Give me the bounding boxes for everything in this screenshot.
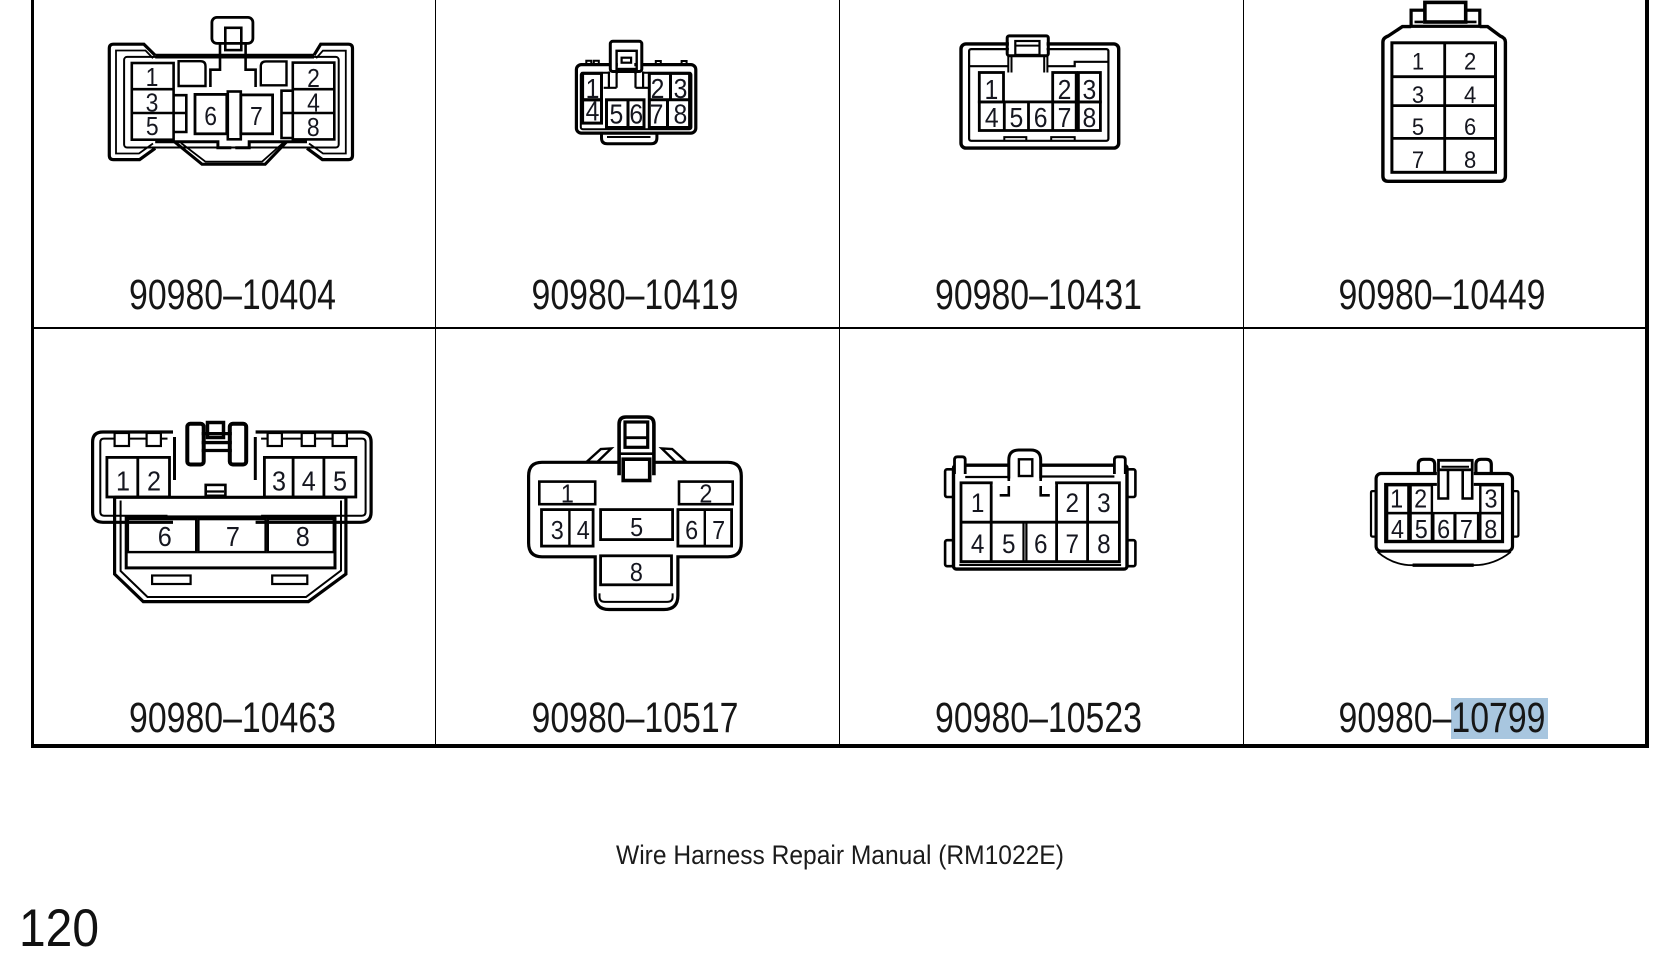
svg-text:7: 7: [250, 103, 263, 131]
svg-text:6: 6: [158, 521, 172, 553]
svg-text:4: 4: [985, 102, 999, 134]
svg-text:8: 8: [630, 559, 643, 587]
svg-text:3: 3: [551, 517, 564, 545]
svg-text:1: 1: [561, 481, 574, 509]
svg-text:2: 2: [1058, 74, 1072, 106]
svg-text:8: 8: [296, 521, 310, 553]
svg-text:3: 3: [272, 465, 286, 497]
svg-text:1: 1: [971, 489, 985, 518]
svg-text:3: 3: [1412, 81, 1424, 108]
svg-text:4: 4: [1464, 81, 1476, 108]
svg-text:1: 1: [1412, 48, 1424, 75]
svg-text:3: 3: [1484, 485, 1497, 513]
svg-text:7: 7: [1460, 516, 1473, 544]
svg-text:6: 6: [1437, 516, 1450, 544]
svg-text:6: 6: [685, 517, 698, 545]
svg-text:8: 8: [674, 98, 688, 130]
svg-text:6: 6: [1034, 530, 1048, 559]
svg-text:5: 5: [1010, 102, 1024, 134]
svg-text:8: 8: [307, 114, 320, 142]
svg-text:2: 2: [1065, 489, 1079, 518]
svg-text:7: 7: [226, 521, 240, 553]
svg-text:8: 8: [1484, 516, 1497, 544]
svg-text:7: 7: [712, 517, 725, 545]
svg-text:5: 5: [146, 113, 159, 141]
svg-text:5: 5: [333, 465, 347, 497]
svg-text:6: 6: [1464, 113, 1476, 140]
svg-text:8: 8: [1083, 102, 1097, 134]
svg-text:5: 5: [630, 514, 643, 542]
svg-text:7: 7: [650, 98, 664, 130]
svg-text:2: 2: [1464, 48, 1476, 75]
svg-text:1: 1: [116, 465, 130, 497]
svg-text:3: 3: [1083, 74, 1097, 106]
svg-text:7: 7: [1412, 146, 1424, 173]
svg-text:4: 4: [586, 95, 600, 127]
svg-text:8: 8: [1464, 146, 1476, 173]
svg-text:5: 5: [610, 98, 624, 130]
svg-text:7: 7: [1058, 102, 1072, 134]
svg-text:4: 4: [971, 530, 985, 559]
svg-text:5: 5: [1412, 113, 1424, 140]
svg-text:4: 4: [577, 517, 590, 545]
svg-text:5: 5: [1002, 530, 1016, 559]
svg-text:2: 2: [699, 481, 712, 509]
svg-text:6: 6: [629, 98, 643, 130]
svg-text:4: 4: [1391, 516, 1404, 544]
svg-text:8: 8: [1097, 530, 1111, 559]
svg-text:1: 1: [146, 64, 159, 92]
svg-text:2: 2: [1414, 485, 1427, 513]
svg-text:7: 7: [1065, 530, 1079, 559]
svg-text:4: 4: [302, 465, 316, 497]
svg-text:6: 6: [204, 103, 217, 131]
svg-text:2: 2: [147, 465, 161, 497]
svg-text:5: 5: [1415, 516, 1428, 544]
svg-text:1: 1: [985, 74, 999, 106]
svg-text:1: 1: [1390, 485, 1403, 513]
svg-text:6: 6: [1034, 102, 1048, 134]
svg-text:3: 3: [1097, 489, 1111, 518]
